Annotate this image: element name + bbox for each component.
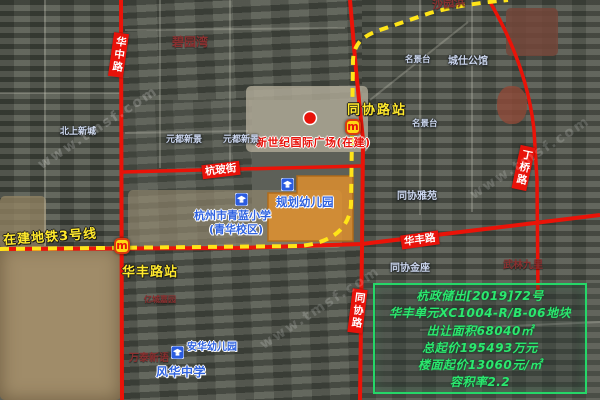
school-icon-anhua xyxy=(171,346,184,359)
qinglan-school-label-line2: (青华校区) xyxy=(209,221,263,237)
station-label-huafeng: 华丰路站 xyxy=(122,261,178,280)
poi-mingjingtai-1: 名景台 xyxy=(405,53,431,65)
poi-wantaixinyu: 万泰新语 xyxy=(129,349,169,364)
poi-yuanduxinjing-2: 元都新景 xyxy=(223,132,259,145)
poi-tongxiejinzuo: 同协金座 xyxy=(390,259,430,274)
planned-kindergarten-label: 规划幼儿园 xyxy=(276,194,334,210)
satellite-map[interactable]: m m 在建地铁3号线 同协路站 华丰路站 华中路 杭玻街 华丰路 同协路 丁桥… xyxy=(0,0,600,400)
notice-line-plot-ratio: 容积率2.2 xyxy=(375,374,585,391)
poi-biyuanwan: 碧园湾 xyxy=(172,33,208,50)
poi-yichengjiayuan: 亿城嘉园 xyxy=(144,294,176,305)
notice-line-start-price: 总起价195493万元 xyxy=(375,340,585,357)
plaza-label: 新世纪国际广场(在建) xyxy=(256,134,371,150)
poi-mingjingtai-2: 名景台 xyxy=(412,117,438,129)
notice-line-area: 出让面积68040㎡ xyxy=(375,323,585,340)
notice-line-doc-number: 杭政储出[2019]72号 xyxy=(375,288,585,305)
poi-chengshigongguan: 城仕公馆 xyxy=(448,52,488,67)
school-icon-planned-kindergarten xyxy=(281,178,294,191)
notice-line-floor-price: 楼面起价13060元/㎡ xyxy=(375,357,585,374)
poi-wulinjiuli: 武林九里 xyxy=(503,256,543,271)
fenghua-school-label: 风华中学 xyxy=(156,363,206,380)
school-icon-qinglan xyxy=(235,193,248,206)
metro-logo-tongxie-station: m xyxy=(345,119,361,135)
notice-line-parcel-id: 华丰单元XC1004-R/B-06地块 xyxy=(375,305,585,322)
metro-logo-huafeng-station: m xyxy=(114,238,130,254)
plaza-location-dot xyxy=(304,112,317,125)
metro-m-icon: m xyxy=(347,120,358,133)
station-label-tongxie: 同协路站 xyxy=(347,99,407,118)
poi-yuanduxinjing-1: 元都新景 xyxy=(166,132,202,145)
anhua-kindergarten-label: 安华幼儿园 xyxy=(187,338,237,353)
road-hangbo-line xyxy=(122,166,362,172)
poi-beishangxincheng: 北上新城 xyxy=(60,124,96,137)
metro-m-icon: m xyxy=(116,239,127,252)
poi-tongxieyayuan: 同协雅苑 xyxy=(397,187,437,202)
land-notice-box: 杭政储出[2019]72号 华丰单元XC1004-R/B-06地块 出让面积68… xyxy=(373,283,587,394)
